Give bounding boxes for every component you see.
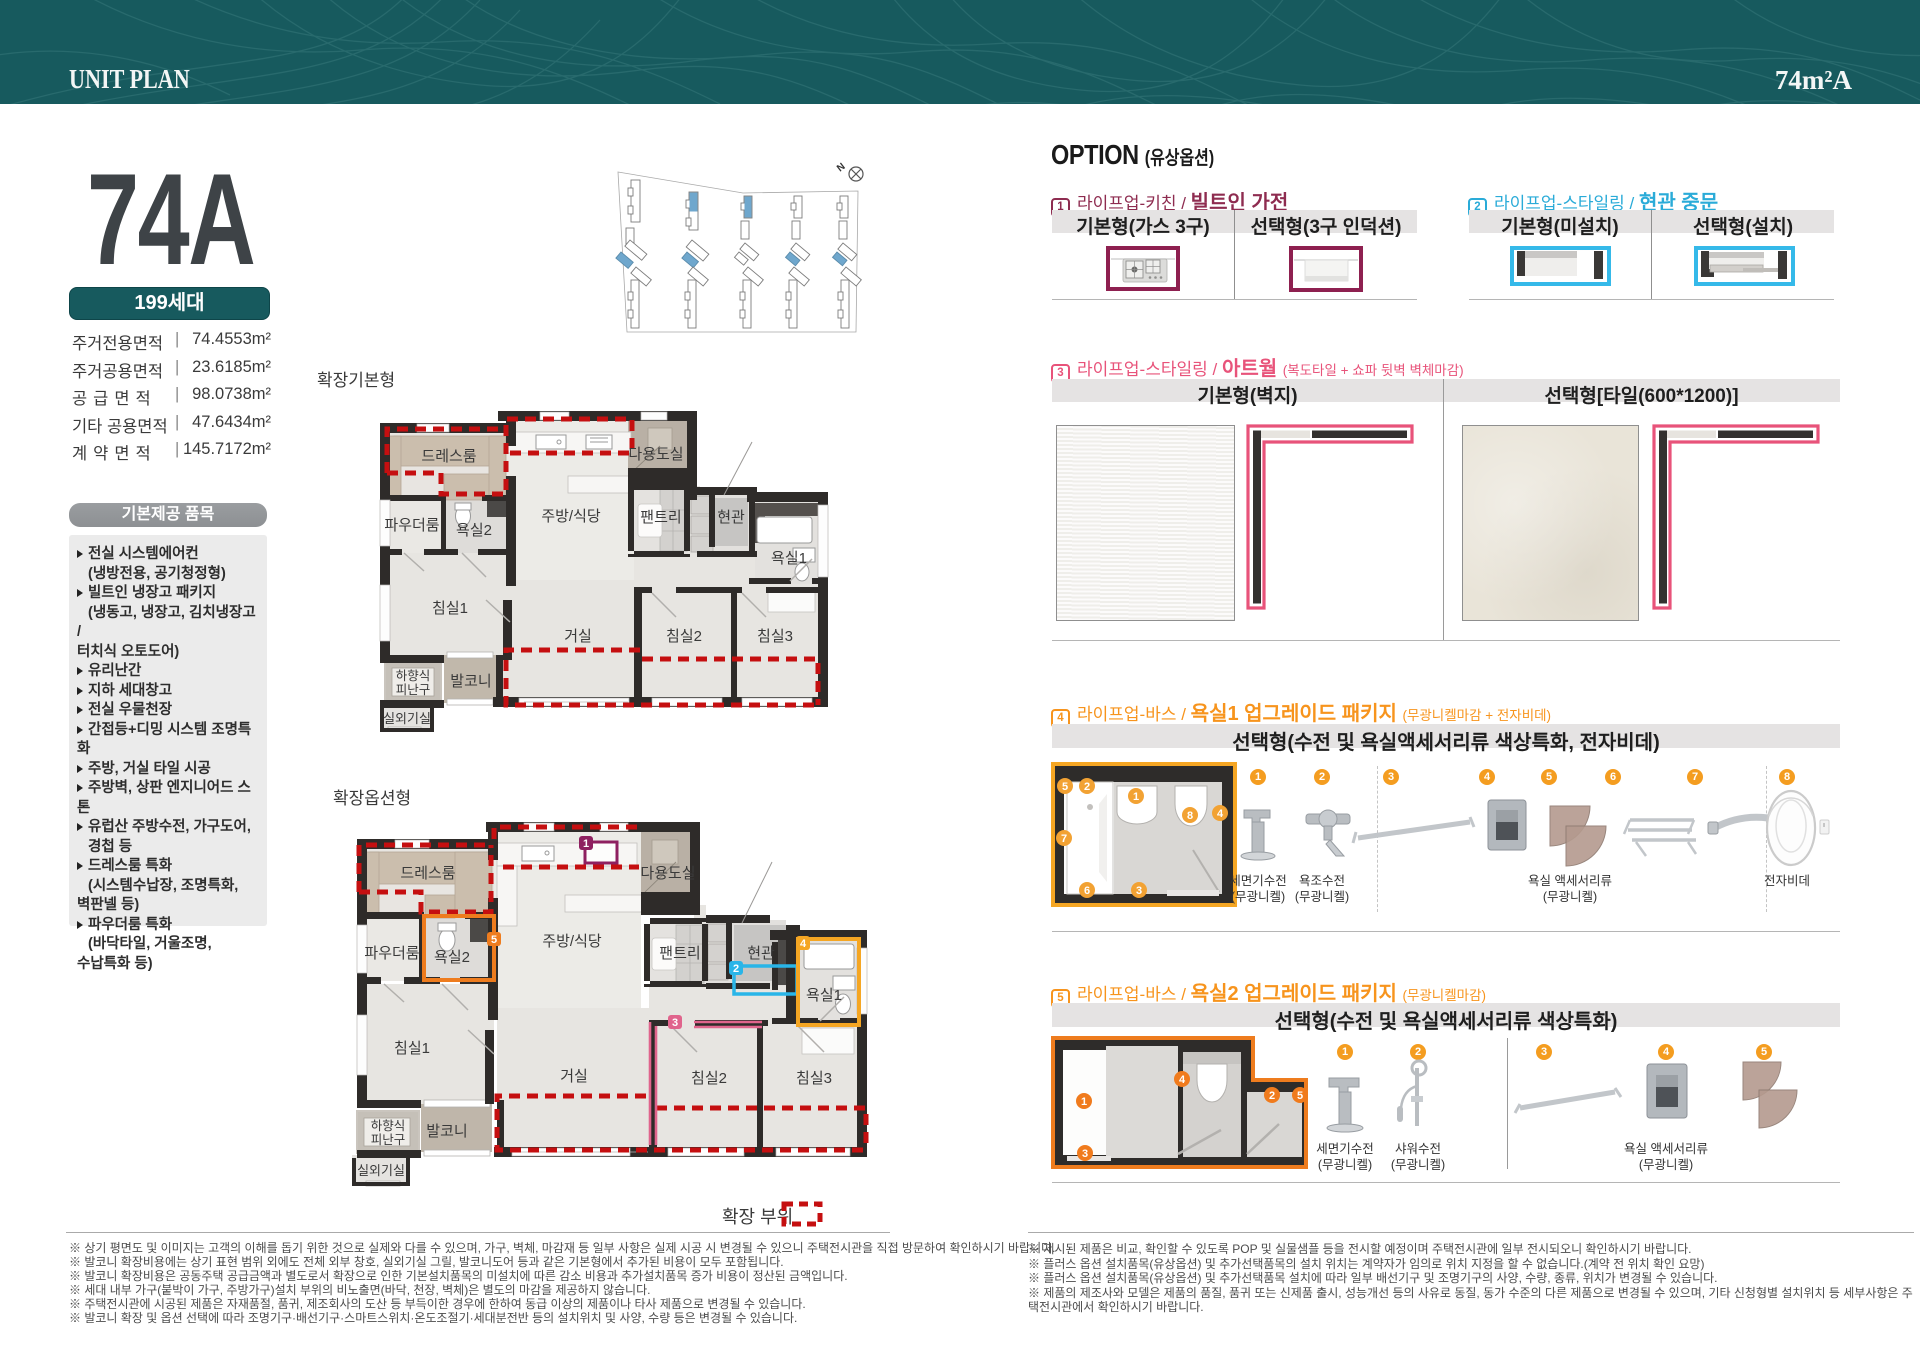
svg-text:주방/식당: 주방/식당 xyxy=(542,933,602,950)
svg-text:N: N xyxy=(835,161,847,174)
svg-text:5: 5 xyxy=(1297,1090,1303,1102)
svg-text:8: 8 xyxy=(1187,810,1193,822)
svg-text:3: 3 xyxy=(1082,1148,1088,1160)
svg-text:다용도실: 다용도실 xyxy=(640,865,695,882)
svg-text:욕실1: 욕실1 xyxy=(806,987,842,1004)
svg-text:7: 7 xyxy=(1061,833,1067,845)
svg-text:발코니: 발코니 xyxy=(450,673,491,690)
svg-text:침실3: 침실3 xyxy=(757,628,793,645)
svg-text:현관: 현관 xyxy=(717,509,745,526)
svg-text:6: 6 xyxy=(1084,885,1090,897)
svg-text:파우더룸: 파우더룸 xyxy=(384,517,439,534)
svg-text:실외기실: 실외기실 xyxy=(357,1163,405,1178)
svg-text:2: 2 xyxy=(1269,1090,1275,1102)
svg-text:2: 2 xyxy=(1084,781,1090,793)
svg-text:드레스룸: 드레스룸 xyxy=(421,448,476,465)
svg-text:1: 1 xyxy=(1133,791,1139,803)
svg-text:피난구: 피난구 xyxy=(371,1133,406,1147)
svg-text:침실1: 침실1 xyxy=(432,600,468,617)
svg-text:실외기실: 실외기실 xyxy=(383,711,431,726)
svg-text:욕실1: 욕실1 xyxy=(771,550,807,567)
svg-text:3: 3 xyxy=(1136,885,1142,897)
svg-text:주방/식당: 주방/식당 xyxy=(541,508,601,525)
svg-text:3: 3 xyxy=(672,1017,678,1029)
svg-text:팬트리: 팬트리 xyxy=(640,509,681,526)
svg-text:4: 4 xyxy=(1217,808,1224,820)
svg-text:4: 4 xyxy=(1179,1074,1186,1086)
svg-text:발코니: 발코니 xyxy=(426,1123,467,1140)
svg-text:침실3: 침실3 xyxy=(796,1070,832,1087)
svg-text:침실2: 침실2 xyxy=(666,628,702,645)
svg-text:1: 1 xyxy=(583,838,589,850)
svg-text:드레스룸: 드레스룸 xyxy=(400,865,455,882)
svg-text:2: 2 xyxy=(733,963,739,975)
svg-text:5: 5 xyxy=(1062,781,1068,793)
svg-text:1: 1 xyxy=(1081,1096,1087,1108)
svg-text:현관: 현관 xyxy=(747,945,775,962)
svg-text:거실: 거실 xyxy=(564,628,592,645)
svg-text:욕실2: 욕실2 xyxy=(456,522,492,539)
svg-text:거실: 거실 xyxy=(560,1068,588,1085)
svg-text:5: 5 xyxy=(491,934,497,946)
svg-text:파우더룸: 파우더룸 xyxy=(364,945,419,962)
svg-text:4: 4 xyxy=(800,938,807,950)
svg-text:다용도실: 다용도실 xyxy=(628,446,683,463)
svg-text:침실1: 침실1 xyxy=(394,1040,430,1057)
svg-text:피난구: 피난구 xyxy=(396,683,431,697)
svg-text:욕실2: 욕실2 xyxy=(434,949,470,966)
svg-text:하향식: 하향식 xyxy=(396,669,431,683)
svg-text:팬트리: 팬트리 xyxy=(659,945,700,962)
svg-text:침실2: 침실2 xyxy=(691,1070,727,1087)
svg-text:하향식: 하향식 xyxy=(371,1119,406,1133)
